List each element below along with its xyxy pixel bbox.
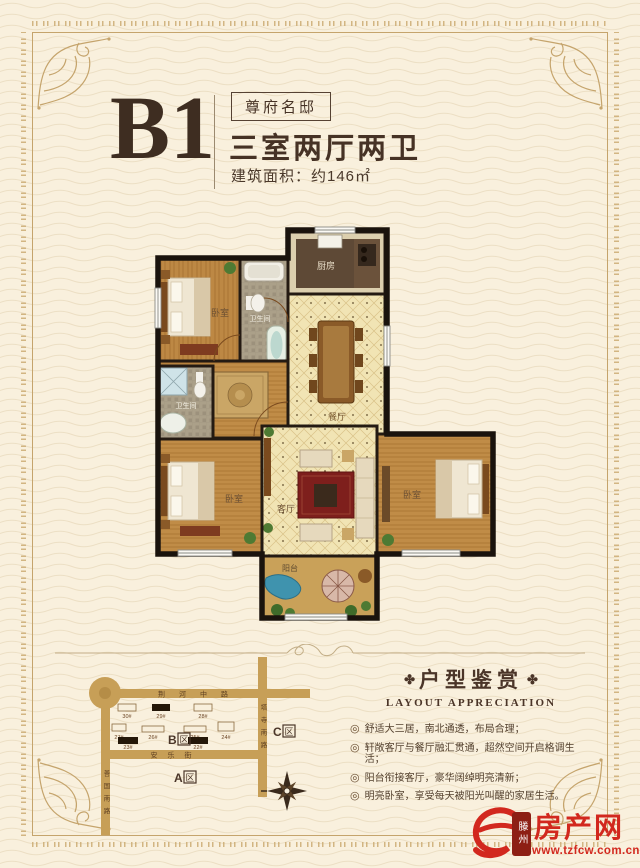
corner-flourish-icon <box>35 35 113 113</box>
location-map: 荆河中路 安乐街 善国南路 塔寺南路 30# 29# 28# 27# 26# 2… <box>88 652 318 840</box>
floor-plan: 厨房 餐厅 卧室 <box>150 226 500 626</box>
svg-text:26#: 26# <box>148 735 158 741</box>
appreciation-title-row: ✤户型鉴赏✤ <box>350 664 592 694</box>
room-dining: 餐厅 <box>288 294 385 436</box>
svg-text:区: 区 <box>185 773 194 783</box>
room-kitchen: 厨房 <box>288 232 385 294</box>
area-description: 建筑面积：约146㎡ <box>231 165 371 186</box>
balcony-label: 阳台 <box>282 563 298 573</box>
bullet-icon: ◎ <box>350 743 360 754</box>
zone-label-c: C 区 <box>273 725 295 739</box>
frame-motif-top <box>32 21 608 26</box>
logo-url[interactable]: www.tzfcw.com.cn <box>532 845 640 857</box>
appreciation-section: ✤户型鉴赏✤ LAYOUT APPRECIATION ◎ 舒适大三居，南北通透，… <box>350 664 592 810</box>
list-item: ◎ 舒适大三居，南北通透，布局合理； <box>350 724 592 736</box>
bullet-icon: ◎ <box>350 773 360 784</box>
room-bath-lower: 卫生间 <box>158 366 213 439</box>
svg-text:23#: 23# <box>123 745 133 751</box>
bedroom-left-label: 卧室 <box>225 493 243 504</box>
svg-text:28#: 28# <box>198 714 208 720</box>
road-middle-label: 安乐街 <box>151 751 202 760</box>
appreciation-title: 户型鉴赏 <box>419 669 523 692</box>
dining-label: 餐厅 <box>328 411 346 422</box>
layout-description: 三室两厅两卫 <box>229 125 421 167</box>
svg-text:B: B <box>168 733 177 747</box>
zone-label-b: B 区 <box>168 733 190 747</box>
balcony: 阳台 <box>262 556 377 618</box>
poster-page: B1 尊府名邸 三室两厅两卫 建筑面积：约146㎡ <box>0 0 640 868</box>
room-bedroom-left: 卧室 <box>158 439 262 553</box>
bath-top-label: 卫生间 <box>250 314 271 323</box>
bullet-icon: ◎ <box>350 724 360 735</box>
svg-text:24#: 24# <box>221 735 231 741</box>
appreciation-list: ◎ 舒适大三居，南北通透，布局合理； ◎ 轩敞客厅与餐厅融汇贯通，超然空间开启格… <box>350 724 592 803</box>
svg-text:区: 区 <box>179 735 188 745</box>
header-divider <box>214 95 215 189</box>
list-item: ◎ 轩敞客厅与餐厅融汇贯通，超然空间开启格调生活； <box>350 743 592 766</box>
bedroom-top-label: 卧室 <box>211 307 229 318</box>
logo-site-name: 房产网 <box>534 806 624 846</box>
fleuron-icon: ✤ <box>527 672 538 687</box>
list-item-text: 轩敞客厅与餐厅融汇贯通，超然空间开启格调生活； <box>365 743 592 766</box>
room-bath-top: 卫生间 <box>240 258 288 368</box>
compass-rose-icon <box>261 771 307 811</box>
bullet-icon: ◎ <box>350 791 360 802</box>
zone-label-a: A 区 <box>174 771 196 785</box>
appreciation-subtitle: LAYOUT APPRECIATION <box>350 697 592 709</box>
svg-text:29#: 29# <box>156 714 166 720</box>
list-item-text: 舒适大三居，南北通透，布局合理； <box>365 724 525 736</box>
bath-lower-label: 卫生间 <box>176 401 197 410</box>
frame-motif-left <box>21 32 26 836</box>
room-bedroom-top: 卧室 <box>158 258 240 361</box>
svg-text:A: A <box>174 771 183 785</box>
corner-flourish-icon <box>527 35 605 113</box>
project-badge: 尊府名邸 <box>231 92 331 121</box>
svg-text:30#: 30# <box>122 714 132 720</box>
road-north-label: 荆河中路 <box>158 690 242 699</box>
fleuron-icon: ✤ <box>404 672 415 687</box>
svg-text:22#: 22# <box>193 745 203 751</box>
list-item-text: 阳台衔接客厅，豪华阔绰明亮清新； <box>365 773 525 785</box>
living-label: 客厅 <box>277 503 295 514</box>
list-item: ◎ 阳台衔接客厅，豪华阔绰明亮清新； <box>350 773 592 785</box>
svg-text:区: 区 <box>284 727 293 737</box>
site-logo: 滕州 房产网 www.tzfcw.com.cn <box>468 798 634 864</box>
kitchen-label: 厨房 <box>317 260 335 271</box>
bedroom-right-label: 卧室 <box>403 489 421 500</box>
plan-code: B1 <box>110 84 215 174</box>
svg-text:C: C <box>273 725 282 739</box>
logo-city-badge: 滕州 <box>512 812 531 856</box>
frame-motif-right <box>614 32 619 836</box>
room-bedroom-right: 卧室 <box>377 434 493 554</box>
